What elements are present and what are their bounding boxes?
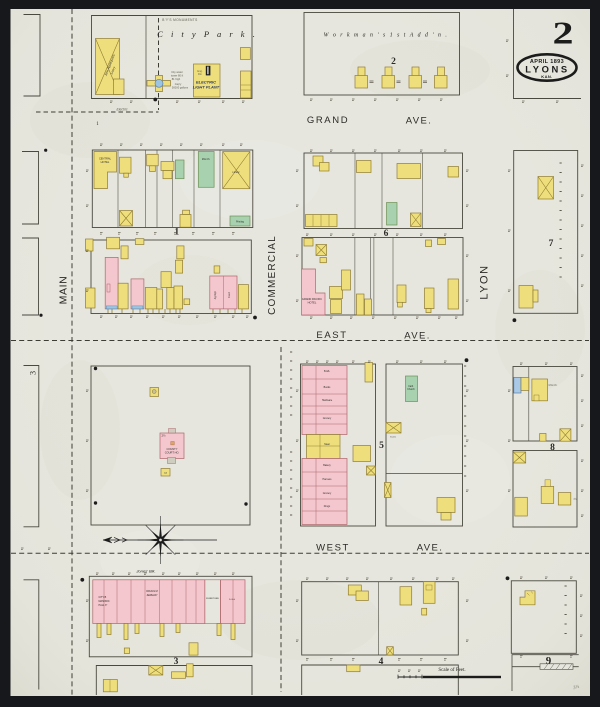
svg-text:COMMERCIAL: COMMERCIAL: [267, 235, 278, 315]
svg-text:AVE.: AVE.: [406, 116, 433, 127]
svg-text:Cap'y: Cap'y: [175, 82, 182, 86]
svg-text:Grocery: Grocery: [323, 492, 332, 495]
svg-text:Electric: Electric: [116, 108, 127, 112]
svg-text:2½: 2½: [162, 434, 167, 438]
svg-text:B.&S.: B.&S.: [324, 370, 330, 373]
svg-text:tower 80 ft: tower 80 ft: [171, 73, 183, 77]
svg-text:Meat: Meat: [324, 443, 330, 446]
svg-text:B'Y'S MONUMENTS: B'Y'S MONUMENTS: [162, 18, 197, 22]
svg-text:HOTEL: HOTEL: [308, 301, 317, 305]
svg-text:MAIN: MAIN: [58, 276, 70, 305]
svg-text:LIGHT PLANT: LIGHT PLANT: [193, 85, 220, 90]
svg-text:81 high: 81 high: [172, 77, 181, 81]
svg-text:COUNTY: COUNTY: [167, 447, 178, 451]
svg-text:HALL 3°: HALL 3°: [99, 604, 108, 607]
svg-text:Bakery: Bakery: [323, 464, 331, 467]
svg-text:7: 7: [549, 239, 554, 249]
svg-text:Jail: Jail: [164, 473, 168, 475]
svg-text:Drugs: Drugs: [324, 505, 331, 508]
svg-text:4: 4: [379, 657, 384, 667]
svg-text:Scale of Feet.: Scale of Feet.: [438, 668, 465, 673]
svg-text:Church: Church: [407, 388, 415, 391]
svg-text:Rm: Rm: [198, 73, 202, 76]
svg-text:MASONIC: MASONIC: [99, 600, 110, 603]
svg-text:Cath.: Cath.: [408, 385, 414, 388]
svg-text:COURT HO.: COURT HO.: [165, 451, 180, 455]
svg-text:3: 3: [28, 371, 38, 375]
svg-text:AVE.: AVE.: [417, 543, 444, 554]
svg-text:Books: Books: [324, 386, 331, 389]
svg-text:KAN.: KAN.: [541, 74, 552, 79]
svg-text:W o r k m a n ' s 1 s t A: W o r k m a n ' s 1 s t A d d ' n .: [324, 33, 449, 39]
svg-text:D.G.&: D.G.&: [229, 599, 235, 601]
svg-text:DRUGS M: DRUGS M: [146, 590, 157, 593]
svg-text:Livery: Livery: [233, 170, 241, 174]
svg-text:EAST: EAST: [316, 330, 347, 341]
svg-text:LYONS: LYONS: [525, 64, 569, 75]
svg-text:Grocery: Grocery: [323, 417, 332, 420]
svg-text:M.E.Ch.: M.E.Ch.: [202, 159, 211, 161]
svg-text:Feed: Feed: [229, 292, 231, 298]
svg-text:5: 5: [379, 441, 384, 451]
svg-text:WEST: WEST: [316, 543, 350, 554]
svg-text:FURNITURE: FURNITURE: [206, 598, 219, 600]
svg-text:HOTEL: HOTEL: [101, 160, 110, 164]
svg-text:Harness: Harness: [323, 478, 333, 481]
svg-text:AVE.: AVE.: [404, 331, 431, 342]
svg-text:Hardware: Hardware: [322, 399, 333, 402]
svg-text:M.E.Ch.: M.E.Ch.: [549, 384, 558, 387]
svg-text:2: 2: [391, 57, 396, 67]
svg-text:LYON: LYON: [479, 264, 491, 299]
svg-text:Ag.Impl.: Ag.Impl.: [214, 290, 217, 299]
svg-text:C i t y P a r k .: C i t y P a r k .: [157, 29, 258, 39]
svg-text:CITY B: CITY B: [99, 596, 107, 599]
svg-text:50000 gallons: 50000 gallons: [172, 86, 189, 90]
svg-text:CENTRAL: CENTRAL: [99, 157, 112, 161]
svg-text:City water: City water: [171, 70, 183, 74]
svg-text:GRAND PACIFIC: GRAND PACIFIC: [302, 297, 322, 301]
svg-text:8: 8: [550, 443, 555, 453]
svg-text:JEWELRY: JEWELRY: [146, 594, 158, 597]
svg-text:2: 2: [553, 15, 574, 51]
svg-text:Printing: Printing: [236, 221, 245, 224]
svg-text:Stable: Stable: [390, 436, 397, 439]
svg-text:GRAND: GRAND: [307, 115, 349, 126]
